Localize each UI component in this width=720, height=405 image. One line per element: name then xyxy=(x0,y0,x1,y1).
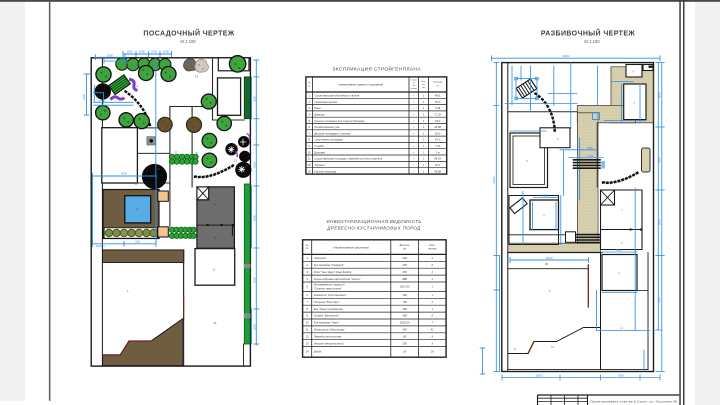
svg-text:20.1: 20.1 xyxy=(435,163,441,167)
svg-text:4.08: 4.08 xyxy=(435,106,441,110)
svg-text:4200: 4200 xyxy=(252,96,256,102)
svg-text:Наименование зданий и сооружен: Наименование зданий и сооружений xyxy=(338,83,383,87)
svg-text:71.20: 71.20 xyxy=(434,113,441,117)
svg-text:13: 13 xyxy=(306,341,309,345)
svg-text:РАЗБИВОЧНЫЙ ЧЕРТЕЖ: РАЗБИВОЧНЫЙ ЧЕРТЕЖ xyxy=(541,28,636,37)
svg-text:Спортивная площадка: Спортивная площадка xyxy=(314,138,343,142)
svg-text:600х600: 600х600 xyxy=(97,100,106,102)
svg-text:3000: 3000 xyxy=(82,94,86,100)
svg-text:М 1:100: М 1:100 xyxy=(584,39,600,44)
svg-text:Баня: Баня xyxy=(314,106,321,110)
svg-text:2000: 2000 xyxy=(587,146,593,150)
svg-text:ДРЕВЕСНО-КУСТАРНИКОВЫХ ПОРОД: ДРЕВЕСНО-КУСТАРНИКОВЫХ ПОРОД xyxy=(326,225,420,230)
svg-text:шт: шт xyxy=(422,87,425,89)
svg-text:Роза "Чьих Двух" (Нью-Блейз): Роза "Чьих Двух" (Нью-Блейз) xyxy=(314,270,352,274)
svg-text:200: 200 xyxy=(401,256,407,260)
svg-text:Жимолость блестящая: Жимолость блестящая xyxy=(313,328,345,332)
svg-text:49.88: 49.88 xyxy=(434,125,441,129)
svg-text:✓: ✓ xyxy=(413,145,415,148)
svg-text:Лаванда узколистная: Лаванда узколистная xyxy=(313,334,342,338)
svg-text:Наименование растений: Наименование растений xyxy=(333,246,369,250)
svg-text:100-150: 100-150 xyxy=(400,285,410,289)
svg-text:ЭКСПЛИКАЦИЯ СТРОЙГЕНПЛАНА: ЭКСПЛИКАЦИЯ СТРОЙГЕНПЛАНА xyxy=(332,65,421,72)
svg-text:7600: 7600 xyxy=(658,297,662,303)
svg-text:плану: плану xyxy=(411,88,418,90)
svg-text:1500: 1500 xyxy=(127,50,133,54)
svg-text:100/120: 100/120 xyxy=(400,321,410,325)
svg-text:Крытая подъезда: Крытая подъезда xyxy=(314,169,336,173)
svg-text:Клематис "Кустовидный": Клематис "Кустовидный" xyxy=(314,293,348,297)
svg-text:Жасмин декоративный: Жасмин декоративный xyxy=(313,341,344,345)
svg-text:1500: 1500 xyxy=(139,50,145,54)
svg-text:чество: чество xyxy=(428,248,437,251)
svg-text:✓: ✓ xyxy=(413,126,415,129)
svg-text:✓: ✓ xyxy=(413,151,415,154)
svg-text:м²: м² xyxy=(436,85,439,88)
svg-text:ИНВЕНТАРИЗАЦИОННАЯ ВЕДОМОСТЬ: ИНВЕНТАРИЗАЦИОННАЯ ВЕДОМОСТЬ xyxy=(327,219,422,224)
svg-text:450: 450 xyxy=(402,328,407,332)
svg-text:12: 12 xyxy=(306,334,309,338)
svg-text:13: 13 xyxy=(308,169,311,173)
svg-text:35: 35 xyxy=(403,350,406,354)
svg-text:300: 300 xyxy=(402,307,407,311)
svg-text:Существующая площадь с камнями: Существующая площадь с камнями уличного … xyxy=(314,157,382,161)
svg-text:400: 400 xyxy=(402,314,407,318)
svg-text:Джакузи: Джакузи xyxy=(314,113,325,117)
svg-text:Туя западная "Амки": Туя западная "Амки" xyxy=(314,321,341,325)
svg-text:Можжевельник казацкий: Можжевельник казацкий xyxy=(314,283,345,287)
svg-text:30000: 30000 xyxy=(562,54,570,58)
svg-text:11: 11 xyxy=(308,157,311,161)
svg-text:Ель "Нана" (канадская): Ель "Нана" (канадская) xyxy=(314,307,343,311)
svg-text:Терраса: Терраса xyxy=(314,163,325,167)
svg-text:Обозн: Обозн xyxy=(411,80,418,82)
svg-text:Бадан: Бадан xyxy=(314,350,322,354)
svg-text:Проектирование участка в Сууке: Проектирование участка в Сууке, ул. Груш… xyxy=(591,400,678,404)
svg-text:7.30: 7.30 xyxy=(435,144,441,148)
svg-text:28.0: 28.0 xyxy=(435,131,441,135)
svg-text:20.0: 20.0 xyxy=(435,100,441,104)
svg-text:см: см xyxy=(403,248,406,251)
svg-text:48.88: 48.88 xyxy=(434,169,441,173)
svg-text:Дорожки: Дорожки xyxy=(314,150,325,154)
svg-text:300: 300 xyxy=(402,293,407,297)
svg-text:86.34: 86.34 xyxy=(434,157,441,161)
svg-text:Сосна кедровая европейская "Ни: Сосна кедровая европейская "Нисса" xyxy=(314,277,362,281)
svg-text:6100: 6100 xyxy=(252,277,256,283)
svg-text:✓: ✓ xyxy=(413,132,415,135)
svg-text:11: 11 xyxy=(620,326,623,330)
svg-text:✓: ✓ xyxy=(413,170,415,173)
svg-text:Кол-: Кол- xyxy=(421,81,426,83)
svg-text:✓: ✓ xyxy=(413,107,415,110)
svg-text:13: 13 xyxy=(234,159,238,163)
svg-text:6000: 6000 xyxy=(121,172,127,176)
svg-text:12: 12 xyxy=(308,163,311,167)
svg-text:14: 14 xyxy=(195,75,199,79)
svg-text:6200: 6200 xyxy=(252,215,256,221)
svg-text:20000: 20000 xyxy=(492,176,496,184)
svg-text:✓: ✓ xyxy=(413,120,415,123)
svg-text:Крытая площадка для отдыха (бе: Крытая площадка для отдыха (беседка) xyxy=(314,119,364,123)
svg-text:12: 12 xyxy=(235,144,239,148)
svg-text:60: 60 xyxy=(403,334,406,338)
svg-text:✓: ✓ xyxy=(413,101,415,104)
svg-text:10: 10 xyxy=(551,345,555,349)
svg-text:3000: 3000 xyxy=(542,193,548,197)
svg-text:200: 200 xyxy=(401,277,407,281)
svg-text:1500: 1500 xyxy=(163,50,169,54)
svg-text:10: 10 xyxy=(308,150,311,154)
svg-text:5000: 5000 xyxy=(616,248,622,252)
svg-text:11: 11 xyxy=(214,321,217,325)
svg-text:41: 41 xyxy=(431,328,434,332)
svg-text:250: 250 xyxy=(401,270,407,274)
svg-text:6500: 6500 xyxy=(658,219,662,225)
svg-text:4100: 4100 xyxy=(252,162,256,168)
svg-text:"Спираль вершителя": "Спираль вершителя" xyxy=(314,287,343,291)
svg-text:5000: 5000 xyxy=(618,373,624,377)
svg-text:6400: 6400 xyxy=(658,157,662,163)
svg-text:Спирея "Вангутта": Спирея "Вангутта" xyxy=(314,314,340,318)
svg-text:1500: 1500 xyxy=(151,50,157,54)
svg-text:700: 700 xyxy=(402,300,407,304)
svg-text:МАФ 12: МАФ 12 xyxy=(96,245,105,248)
svg-text:29.0: 29.0 xyxy=(435,119,441,123)
svg-text:Гараж/мастерская: Гараж/мастерская xyxy=(314,100,337,104)
svg-text:15000: 15000 xyxy=(535,373,543,377)
svg-text:Существующая обитаемость жилая: Существующая обитаемость жилая xyxy=(314,94,359,98)
svg-text:250: 250 xyxy=(401,263,407,267)
svg-text:М 1:100: М 1:100 xyxy=(180,39,196,44)
svg-text:10: 10 xyxy=(306,321,309,325)
svg-text:✓: ✓ xyxy=(413,114,415,117)
svg-text:26: 26 xyxy=(430,350,434,354)
svg-text:Хозяйственный узел: Хозяйственный узел xyxy=(314,125,340,129)
svg-text:Глициния "Блю Мун": Глициния "Блю Мун" xyxy=(314,300,341,304)
svg-text:3000: 3000 xyxy=(107,53,113,57)
svg-text:✓: ✓ xyxy=(413,158,415,161)
svg-text:40±1: 40±1 xyxy=(435,94,441,98)
svg-text:✓: ✓ xyxy=(413,164,415,167)
svg-text:Детская площадка с газоном: Детская площадка с газоном xyxy=(314,131,350,135)
svg-text:15000: 15000 xyxy=(545,256,553,260)
svg-text:43.2: 43.2 xyxy=(435,138,441,142)
svg-text:✓: ✓ xyxy=(413,95,415,98)
svg-text:Туя западная "Смарагд": Туя западная "Смарагд" xyxy=(314,263,345,267)
svg-text:ПОСАДОЧНЫЙ ЧЕРТЕЖ: ПОСАДОЧНЫЙ ЧЕРТЕЖ xyxy=(143,28,234,37)
svg-text:250: 250 xyxy=(401,341,407,345)
svg-text:3500: 3500 xyxy=(252,324,256,330)
svg-text:8: 8 xyxy=(135,182,137,186)
svg-text:6000: 6000 xyxy=(658,92,662,98)
svg-text:2: 2 xyxy=(213,268,215,272)
svg-text:✓: ✓ xyxy=(413,139,415,142)
svg-text:Площадь: Площадь xyxy=(433,82,443,84)
svg-text:3000: 3000 xyxy=(135,241,141,244)
svg-text:Чубушник: Чубушник xyxy=(314,256,327,260)
svg-text:14: 14 xyxy=(306,350,309,354)
svg-text:7 м: 7 м xyxy=(436,150,440,154)
svg-text:Клумба: Клумба xyxy=(314,144,324,148)
